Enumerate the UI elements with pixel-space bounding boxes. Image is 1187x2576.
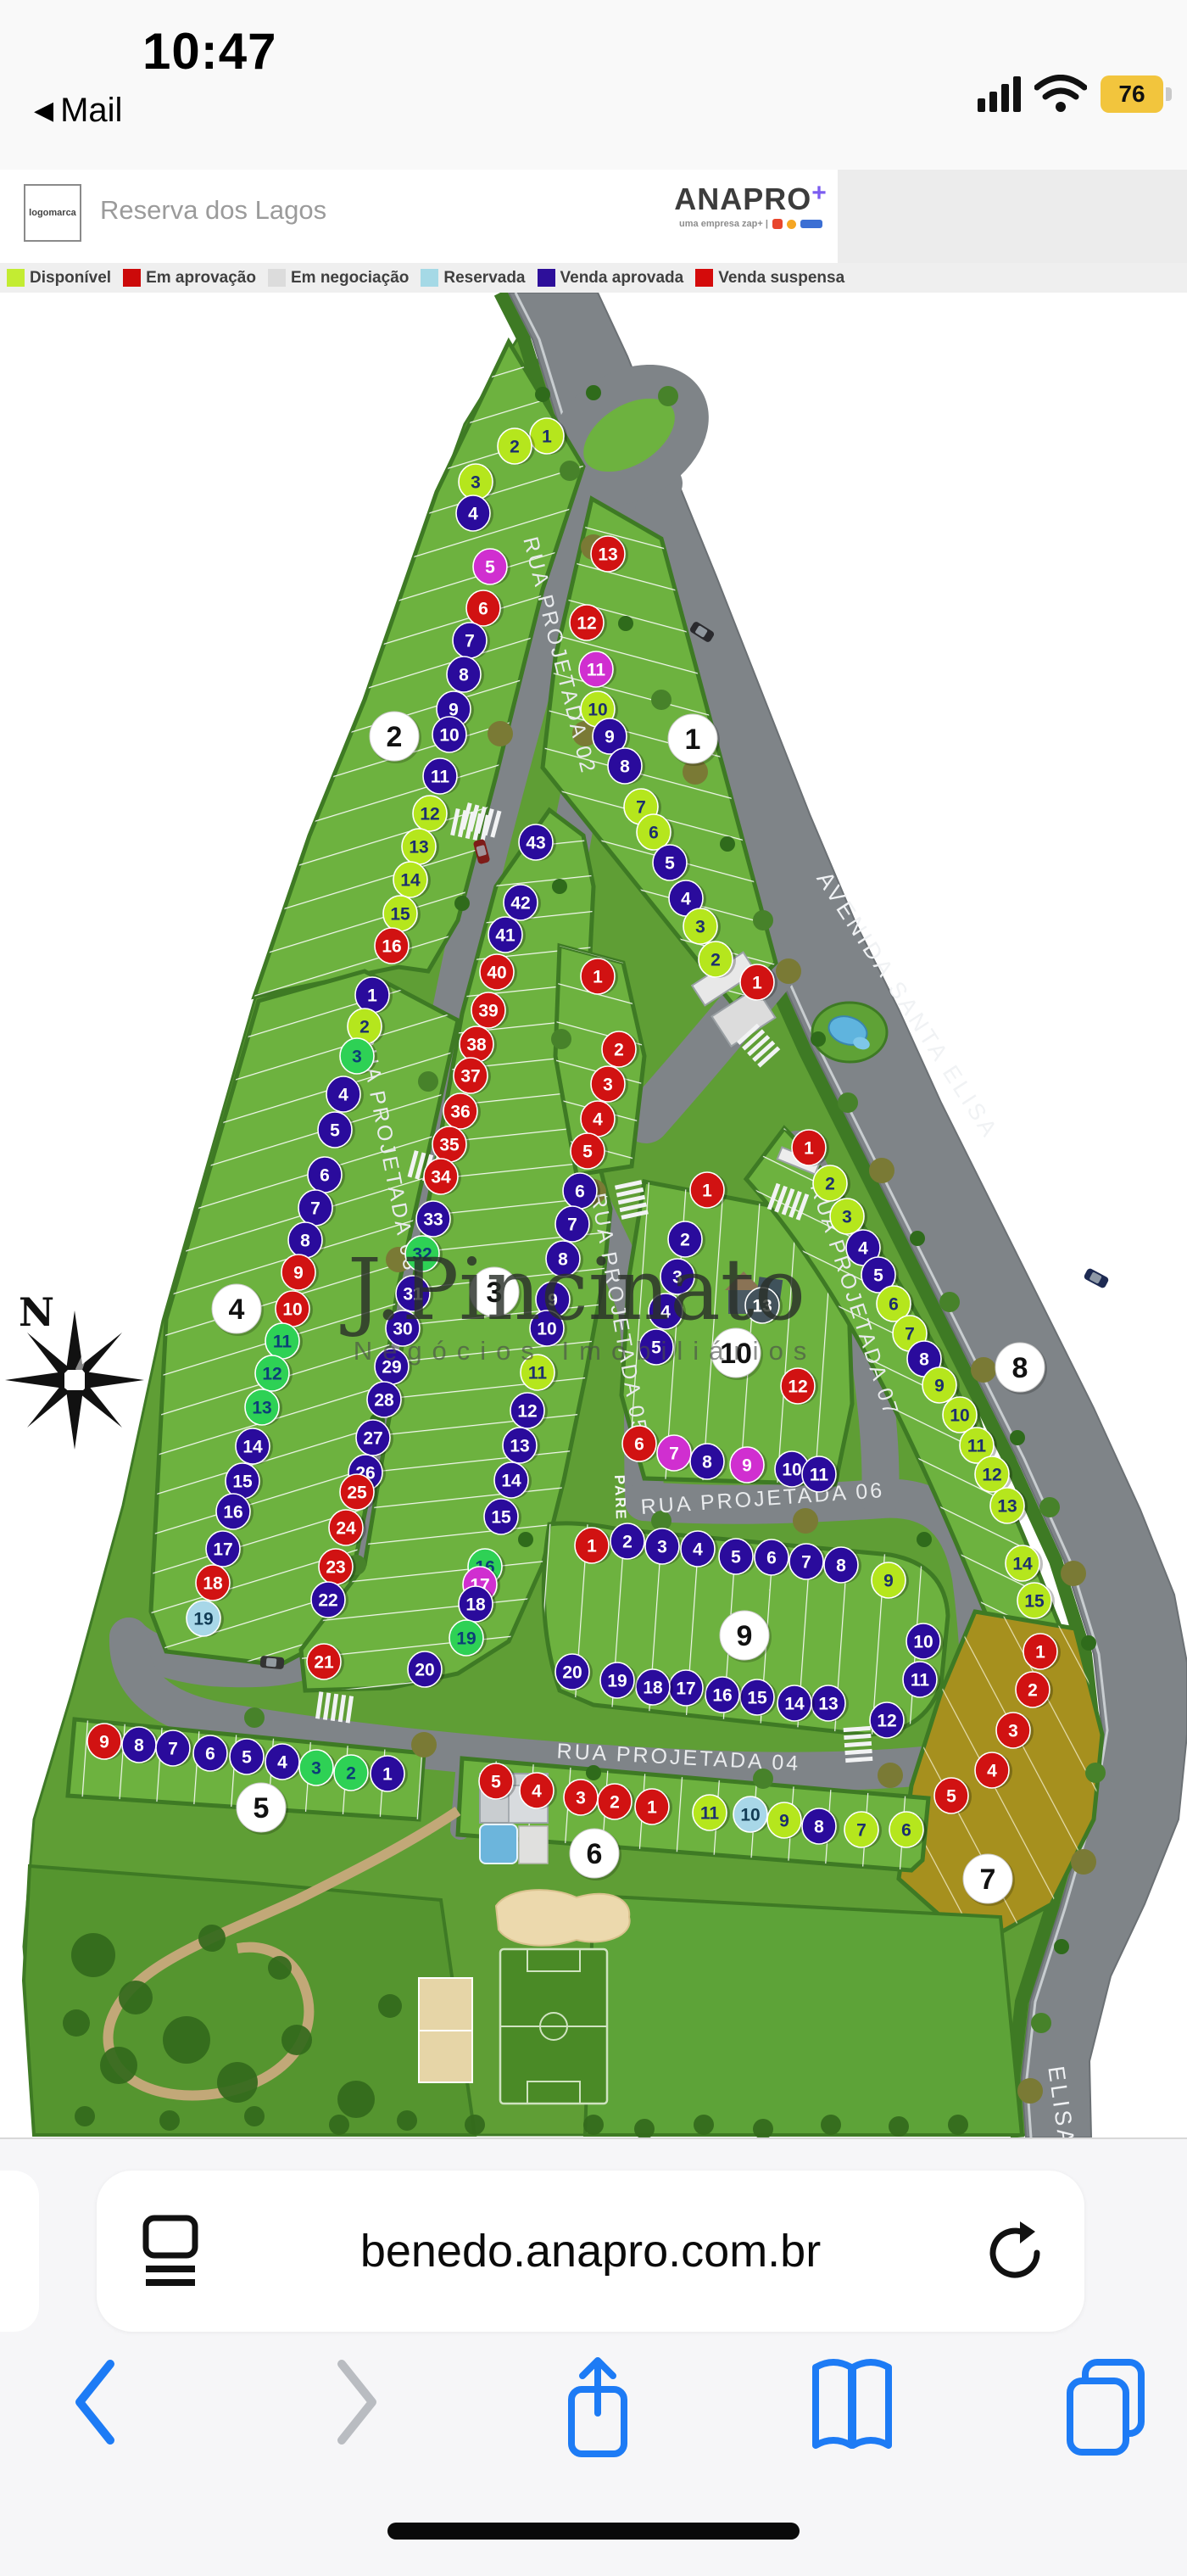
svg-text:18: 18 [203,1574,223,1594]
logo-placeholder-text: logomarca [29,208,76,218]
tree-icon [268,1956,292,1980]
battery-icon: 76 [1101,75,1172,113]
svg-text:12: 12 [577,614,596,634]
tree-icon [71,1933,115,1977]
svg-text:11: 11 [810,1466,829,1485]
svg-text:9: 9 [737,1620,753,1652]
tree-icon [552,879,567,894]
tree-icon [1017,2078,1043,2104]
url-text[interactable]: benedo.anapro.com.br [97,2225,1084,2277]
tree-icon [217,2062,258,2103]
back-app-label: Mail [60,92,122,130]
tree-icon [1081,1635,1096,1651]
svg-text:2: 2 [510,438,520,457]
svg-text:27: 27 [363,1429,382,1449]
svg-text:6: 6 [901,1821,911,1841]
svg-text:1: 1 [685,724,701,756]
svg-text:3: 3 [311,1759,321,1779]
svg-text:4: 4 [468,505,478,524]
svg-text:34: 34 [431,1168,451,1187]
anapro-plus-icon: + [811,179,828,207]
status-legend: DisponívelEm aprovaçãoEm negociaçãoReser… [0,263,1187,293]
svg-text:4: 4 [693,1540,703,1560]
svg-text:10: 10 [588,701,607,720]
tree-icon [889,2116,909,2137]
adjacent-tab-edge[interactable] [0,2171,39,2332]
svg-text:2: 2 [614,1041,624,1060]
partner-logo-icon [800,220,822,228]
svg-text:1: 1 [804,1139,814,1159]
tree-icon [948,2115,968,2135]
address-bar[interactable]: benedo.anapro.com.br [97,2171,1084,2332]
svg-text:7: 7 [567,1215,577,1235]
legend-item: Em negociação [268,269,409,288]
playground-sand [496,1890,630,1946]
svg-text:2: 2 [359,1018,370,1037]
tabs-button[interactable] [1060,2355,1153,2461]
svg-text:14: 14 [501,1472,521,1491]
svg-text:9: 9 [99,1733,109,1752]
svg-text:7: 7 [905,1325,915,1344]
svg-text:1: 1 [587,1537,597,1556]
svg-text:15: 15 [747,1689,767,1708]
svg-text:6: 6 [889,1295,899,1315]
tree-icon [551,1029,571,1049]
tree-icon [971,1357,996,1383]
svg-text:5: 5 [946,1787,956,1807]
svg-text:1: 1 [752,974,762,993]
svg-text:19: 19 [456,1629,476,1649]
tree-icon [397,2110,417,2131]
svg-text:9: 9 [293,1264,304,1283]
tree-icon [378,1994,402,2018]
forward-button[interactable] [326,2355,386,2453]
svg-text:11: 11 [587,661,606,680]
page-format-icon[interactable] [141,2215,200,2292]
svg-text:15: 15 [390,905,410,925]
tree-icon [869,1158,894,1183]
svg-text:15: 15 [232,1472,253,1492]
tree-icon [1061,1561,1086,1586]
tree-icon [586,1765,601,1780]
svg-text:41: 41 [495,926,515,946]
svg-text:11: 11 [528,1364,548,1383]
tree-icon [618,616,633,631]
svg-text:13: 13 [409,838,428,858]
svg-text:9: 9 [779,1812,789,1831]
svg-text:14: 14 [400,871,421,891]
svg-text:7: 7 [310,1199,320,1219]
svg-text:12: 12 [420,805,439,824]
svg-text:42: 42 [510,894,530,914]
svg-text:22: 22 [318,1591,337,1611]
svg-text:15: 15 [491,1508,511,1528]
svg-text:12: 12 [982,1466,1001,1485]
tree-icon [720,836,735,852]
reload-button[interactable] [983,2218,1049,2292]
svg-text:40: 40 [487,964,506,983]
tree-icon [198,1925,226,1952]
svg-text:1: 1 [1035,1643,1045,1662]
tree-icon [411,1732,437,1757]
svg-text:16: 16 [382,937,401,957]
svg-text:24: 24 [336,1519,356,1539]
svg-text:15: 15 [1024,1592,1045,1612]
tree-icon [244,1707,265,1728]
svg-text:6: 6 [766,1549,777,1568]
tree-icon [917,1532,932,1547]
pool [480,1824,517,1864]
partner-logo-icon [787,220,796,229]
tree-icon [75,2106,95,2126]
legend-label: Disponível [30,269,111,288]
tree-icon [753,910,773,930]
legend-color-swatch [695,269,713,287]
svg-text:13: 13 [997,1497,1017,1517]
tree-icon [418,1071,438,1092]
svg-text:17: 17 [676,1679,695,1699]
svg-text:14: 14 [784,1695,805,1714]
svg-text:7: 7 [856,1821,867,1841]
svg-text:16: 16 [223,1503,242,1523]
svg-text:8: 8 [814,1818,824,1837]
legend-label: Em negociação [291,269,409,288]
partner-logo-icon [772,219,783,229]
svg-text:7: 7 [636,798,646,818]
tree-icon [560,461,580,481]
svg-text:13: 13 [510,1437,529,1456]
svg-text:38: 38 [466,1036,487,1055]
tree-icon [465,2115,485,2135]
car [259,1656,284,1669]
svg-text:6: 6 [205,1745,215,1764]
svg-text:5: 5 [254,1792,270,1824]
svg-text:18: 18 [643,1679,663,1698]
back-triangle-icon: ◀ [34,96,53,126]
tree-icon [281,2025,312,2055]
tree-icon [1085,1763,1106,1783]
svg-text:2: 2 [622,1533,633,1552]
svg-text:4: 4 [681,890,691,909]
svg-text:6: 6 [320,1166,330,1186]
svg-text:6: 6 [634,1435,644,1455]
page-title: Reserva dos Lagos [100,195,326,226]
svg-text:8: 8 [300,1232,310,1251]
anapro-subtext: uma empresa zap+ | [679,219,768,229]
svg-text:6: 6 [478,600,488,619]
svg-text:9: 9 [883,1572,894,1591]
tree-icon [1039,1497,1060,1517]
svg-text:4: 4 [858,1239,868,1259]
svg-text:8: 8 [620,757,630,777]
tree-icon [1071,1849,1096,1875]
battery-percent: 76 [1118,81,1145,108]
legend-label: Venda suspensa [718,269,844,288]
legend-label: Venda aprovada [560,269,684,288]
svg-text:7: 7 [801,1553,811,1573]
svg-text:25: 25 [347,1484,367,1503]
legend-item: Reservada [421,269,525,288]
svg-text:18: 18 [465,1595,486,1615]
svg-text:5: 5 [330,1121,340,1141]
legend-color-swatch [268,269,286,287]
cellular-signal-icon [978,76,1021,112]
svg-text:3: 3 [1008,1722,1018,1741]
svg-text:11: 11 [431,768,450,787]
back-to-app-link[interactable]: ◀ Mail [34,92,122,130]
svg-text:12: 12 [788,1377,807,1397]
tree-icon [1054,1939,1069,1954]
svg-text:14: 14 [1012,1555,1033,1574]
wifi-icon [1034,75,1087,114]
svg-text:11: 11 [967,1437,987,1456]
svg-text:10: 10 [740,1806,760,1825]
svg-text:19: 19 [193,1610,213,1629]
svg-text:37: 37 [460,1067,480,1087]
svg-text:8: 8 [836,1556,846,1576]
svg-text:1: 1 [382,1765,393,1785]
svg-text:9: 9 [742,1456,752,1476]
svg-text:20: 20 [415,1661,434,1680]
svg-text:5: 5 [582,1143,593,1162]
svg-text:13: 13 [252,1399,271,1418]
svg-text:3: 3 [471,473,481,493]
svg-text:23: 23 [326,1558,345,1578]
svg-text:3: 3 [576,1789,586,1808]
site-header: logomarca Reserva dos Lagos ANAPRO+ uma … [0,170,1187,263]
tree-icon [159,2110,180,2131]
svg-text:3: 3 [603,1076,613,1095]
tree-icon [100,2047,137,2084]
svg-text:12: 12 [262,1365,281,1384]
legend-item: Venda suspensa [695,269,844,288]
anapro-logo: ANAPRO+ uma empresa zap+ | [672,182,829,229]
soccer-field [500,1949,607,2104]
svg-text:2: 2 [825,1175,835,1194]
legend-item: Disponível [7,269,111,288]
svg-text:7: 7 [980,1864,996,1896]
tree-icon [63,2009,90,2037]
svg-text:5: 5 [242,1748,252,1768]
tree-icon [658,386,678,406]
svg-text:8: 8 [702,1453,712,1472]
back-button[interactable] [66,2355,125,2453]
svg-text:3: 3 [352,1048,362,1067]
svg-text:21: 21 [314,1653,334,1673]
svg-text:2: 2 [1028,1681,1038,1701]
tree-icon [488,721,513,746]
svg-text:11: 11 [911,1671,930,1690]
svg-text:13: 13 [598,545,617,565]
legend-color-swatch [7,269,25,287]
svg-text:36: 36 [450,1103,470,1122]
svg-text:8: 8 [1012,1352,1028,1384]
svg-text:4: 4 [277,1753,287,1773]
svg-text:2: 2 [610,1793,620,1813]
legend-label: Em aprovação [146,269,256,288]
svg-text:8: 8 [134,1736,144,1756]
tree-icon [838,1092,858,1113]
svg-text:4: 4 [338,1086,348,1105]
tree-icon [821,2115,841,2135]
svg-text:10: 10 [439,726,459,746]
tree-icon [694,2115,714,2135]
svg-text:10: 10 [782,1461,801,1480]
entrance-pond [812,1003,887,1062]
svg-text:8: 8 [459,666,469,685]
legend-label: Reservada [443,269,525,288]
svg-text:17: 17 [213,1540,232,1560]
svg-text:20: 20 [562,1663,582,1683]
site-map-svg[interactable]: N RUA PROJETADA 02RUA PROJETADA 03RUA PR… [0,293,1187,2137]
safari-bottom-bar: benedo.anapro.com.br [0,2137,1187,2576]
svg-text:2: 2 [711,951,721,970]
svg-text:4: 4 [532,1782,542,1802]
svg-text:13: 13 [818,1695,838,1714]
home-indicator[interactable] [387,2523,800,2540]
svg-text:10: 10 [950,1406,969,1426]
bookmarks-button[interactable] [805,2355,899,2461]
legend-color-swatch [421,269,438,287]
svg-text:11: 11 [273,1333,293,1352]
volleyball-court [419,1978,472,2082]
tree-icon [329,2115,349,2135]
tree-icon [878,1763,903,1788]
svg-text:16: 16 [712,1686,732,1706]
open-field [585,1896,1022,2135]
svg-text:1: 1 [593,968,603,987]
watermark-subtitle: Negócios Imobiliários [354,1336,817,1366]
watermark-title: J.Pincinato [340,1240,805,1339]
svg-text:35: 35 [439,1136,460,1155]
svg-text:8: 8 [919,1350,929,1370]
ios-status-bar: 10:47 ◀ Mail 76 [0,0,1187,170]
svg-text:33: 33 [423,1210,443,1230]
svg-text:5: 5 [731,1548,741,1567]
tree-icon [939,1292,960,1312]
svg-text:5: 5 [873,1266,883,1286]
tree-icon [1010,1430,1025,1445]
svg-text:5: 5 [491,1773,501,1792]
tree-icon [119,1981,153,2014]
svg-text:14: 14 [242,1438,263,1457]
pare-road-marking: PARE [611,1475,629,1522]
svg-text:1: 1 [367,986,377,1006]
svg-text:2: 2 [387,721,403,753]
svg-text:1: 1 [542,427,552,447]
svg-text:43: 43 [526,834,545,853]
svg-text:11: 11 [700,1804,720,1824]
svg-text:7: 7 [168,1740,178,1759]
svg-text:4: 4 [593,1110,603,1130]
legend-color-swatch [123,269,141,287]
svg-text:5: 5 [665,854,675,874]
svg-text:2: 2 [346,1764,356,1784]
svg-text:5: 5 [485,558,495,578]
tree-icon [910,1231,925,1246]
tree-icon [535,387,550,402]
developer-logo: logomarca [24,184,81,242]
svg-text:1: 1 [647,1798,657,1818]
svg-text:10: 10 [282,1300,302,1320]
tree-icon [244,2106,265,2126]
svg-text:4: 4 [987,1762,997,1781]
masterplan-map[interactable]: N RUA PROJETADA 02RUA PROJETADA 03RUA PR… [0,293,1187,2137]
tree-icon [337,2081,375,2118]
legend-item: Venda aprovada [538,269,684,288]
compass-north-label: N [19,1289,54,1335]
svg-text:19: 19 [607,1672,627,1691]
tree-icon [518,1532,533,1547]
legend-color-swatch [538,269,555,287]
svg-text:6: 6 [649,824,659,843]
svg-text:9: 9 [934,1377,945,1396]
tree-icon [586,385,601,400]
svg-text:28: 28 [374,1391,394,1411]
tree-icon [651,690,672,710]
svg-text:7: 7 [669,1444,679,1464]
svg-text:4: 4 [229,1294,245,1326]
svg-text:7: 7 [465,632,475,651]
svg-text:39: 39 [478,1002,498,1021]
svg-text:6: 6 [575,1182,585,1202]
svg-text:3: 3 [842,1208,852,1227]
tree-icon [163,2016,210,2064]
svg-text:10: 10 [913,1633,933,1652]
svg-text:3: 3 [695,918,705,937]
svg-text:3: 3 [657,1538,667,1557]
svg-text:9: 9 [605,728,615,747]
tree-icon [793,1508,818,1534]
svg-text:12: 12 [877,1712,896,1731]
tree-icon [583,2115,604,2135]
svg-text:1: 1 [702,1182,712,1201]
share-button[interactable] [560,2355,636,2466]
tree-icon [1031,2013,1051,2033]
tree-icon [776,958,801,984]
svg-text:6: 6 [587,1838,603,1870]
svg-text:12: 12 [517,1402,537,1422]
legend-item: Em aprovação [123,269,256,288]
clock: 10:47 [142,22,276,81]
tree-icon [811,1031,826,1047]
tree-icon [454,896,470,911]
